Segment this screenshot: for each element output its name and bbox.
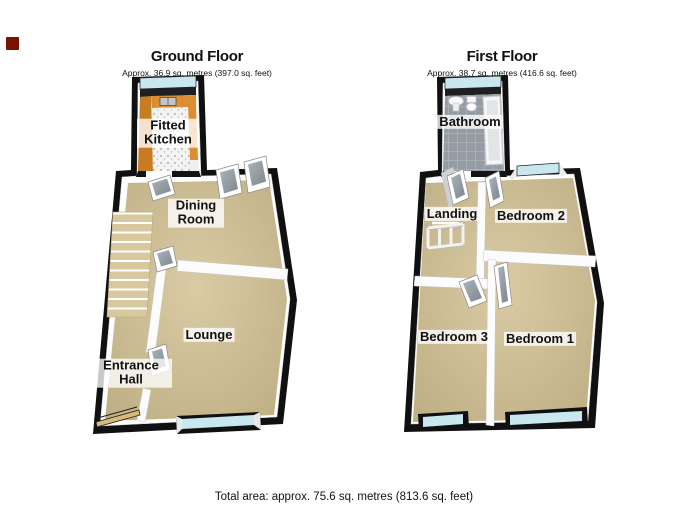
ground-floor-title: Ground Floor xyxy=(82,49,312,65)
total-area-text: Total area: approx. 75.6 sq. metres (813… xyxy=(0,491,688,503)
label-bedroom-3: Bedroom 3 xyxy=(418,330,490,344)
label-fitted-kitchen: Fitted Kitchen xyxy=(137,119,199,148)
label-bathroom: Bathroom xyxy=(437,115,502,129)
bedroom3-window xyxy=(418,411,469,431)
label-entrance-hall: Entrance Hall xyxy=(90,359,172,388)
first-floor-plan xyxy=(395,70,630,470)
floorplan-page: Ground Floor Approx. 36.9 sq. metres (39… xyxy=(0,0,700,509)
label-dining-room: Dining Room xyxy=(168,199,224,228)
first-floor-title: First Floor xyxy=(390,49,614,65)
bathroom-window xyxy=(445,76,501,89)
label-bedroom-1: Bedroom 1 xyxy=(504,332,576,346)
toilet xyxy=(467,97,476,103)
dining-french-door-right xyxy=(244,156,270,193)
label-lounge: Lounge xyxy=(184,328,235,342)
label-bedroom-2: Bedroom 2 xyxy=(495,209,567,223)
dining-french-door-left xyxy=(216,164,242,199)
label-landing: Landing xyxy=(425,207,480,221)
brand-logo xyxy=(6,37,19,50)
staircase xyxy=(107,212,153,317)
kitchen-window xyxy=(140,76,196,89)
